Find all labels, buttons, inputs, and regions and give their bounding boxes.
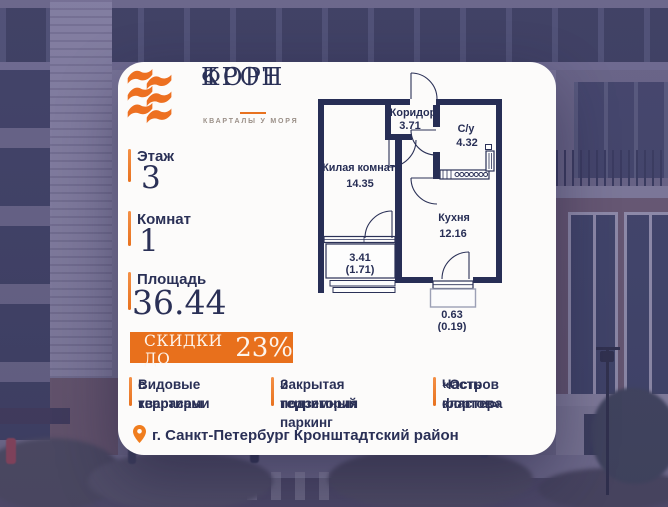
feature-accent-bar — [129, 377, 132, 406]
small-balcony-reduced-area: (0.19) — [438, 321, 467, 332]
discount-banner: СКИДКИ ДО 23% — [130, 332, 293, 363]
feature-line: «Остров фортов» — [442, 375, 500, 413]
stat-rooms-value: 1 — [139, 223, 159, 259]
logo-divider — [240, 112, 266, 114]
logo-tagline: КВАРТАЛЫ У МОРЯ — [203, 118, 298, 125]
room-corridor-area: 3.71 — [399, 120, 420, 132]
discount-prefix: СКИДКИ ДО — [144, 328, 228, 368]
room-living-name: Жилая комната — [318, 162, 402, 174]
floor-plan: Коридор 3.71 С/у 4.32 Жилая комната 14.3… — [315, 62, 527, 332]
stat-accent-bar — [128, 211, 131, 246]
small-balcony-area: 0.63 — [441, 309, 462, 321]
room-living-area: 14.35 — [346, 178, 374, 190]
feature-line: и подземный паркинг — [280, 375, 357, 432]
discount-percent: 23% — [235, 333, 293, 363]
feature-accent-bar — [433, 377, 436, 406]
logo-name-line2: ФОРТ — [201, 64, 281, 90]
map-pin-icon — [133, 425, 146, 443]
balcony-area: 3.41 — [349, 252, 370, 264]
apartment-card[interactable]: КРОН ФОРТ КВАРТАЛЫ У МОРЯ Этаж 3 Комнат … — [118, 62, 556, 455]
feature-accent-bar — [271, 377, 274, 406]
room-bathroom-name: С/у — [458, 123, 475, 135]
room-corridor-name: Коридор — [390, 107, 437, 119]
balcony-reduced-area: (1.71) — [346, 264, 375, 276]
feature-line: с террасами — [138, 375, 210, 413]
stat-floor-value: 3 — [141, 160, 161, 196]
ad-page: КРОН ФОРТ КВАРТАЛЫ У МОРЯ Этаж 3 Комнат … — [0, 0, 668, 507]
room-bathroom-area: 4.32 — [456, 137, 477, 149]
room-kitchen-area: 12.16 — [439, 228, 467, 240]
stat-area-value: 36.44 — [132, 283, 226, 322]
stat-accent-bar — [128, 149, 131, 182]
location-text: г. Санкт-Петербург Кронштадтский район — [152, 427, 459, 444]
stat-accent-bar — [128, 272, 131, 310]
room-kitchen-name: Кухня — [438, 212, 470, 224]
logo-waves-icon — [127, 66, 189, 134]
plan-outer-balcony — [431, 289, 476, 307]
